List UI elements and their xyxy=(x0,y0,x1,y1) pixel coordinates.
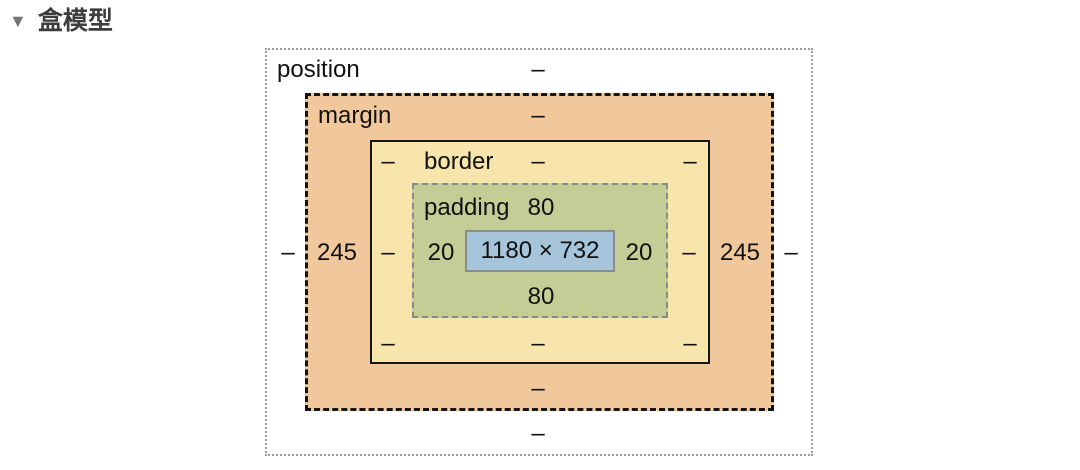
margin-top-value: – xyxy=(531,104,544,128)
border-bottom-left-value: – xyxy=(381,332,394,356)
section-title: 盒模型 xyxy=(38,9,113,34)
position-left-value: – xyxy=(281,241,294,265)
margin-bottom-value: – xyxy=(531,377,544,401)
border-left-value: – xyxy=(381,241,394,265)
border-bottom-value: – xyxy=(531,332,544,356)
border-label: border xyxy=(424,150,493,174)
disclosure-triangle-icon[interactable]: ▼ xyxy=(9,12,27,30)
position-label: position xyxy=(277,58,360,82)
content-size-value: 1180 × 732 xyxy=(480,237,599,265)
border-bottom-right-value: – xyxy=(683,332,696,356)
padding-right-value: 20 xyxy=(626,241,653,265)
padding-top-value: 80 xyxy=(528,196,555,220)
content-box[interactable]: 1180 × 732 xyxy=(465,230,615,272)
margin-right-value: 245 xyxy=(720,241,760,265)
computed-styles-panel: ▼ 盒模型 1180 × 732 position – margin – – b… xyxy=(0,0,1080,470)
border-top-value: – xyxy=(531,150,544,174)
position-top-value: – xyxy=(531,58,544,82)
position-bottom-value: – xyxy=(531,422,544,446)
border-top-right-value: – xyxy=(683,150,696,174)
margin-label: margin xyxy=(318,104,391,128)
padding-left-value: 20 xyxy=(428,241,455,265)
margin-left-value: 245 xyxy=(317,241,357,265)
padding-label: padding xyxy=(424,196,509,220)
border-right-value: – xyxy=(682,241,695,265)
padding-bottom-value: 80 xyxy=(528,285,555,309)
position-right-value: – xyxy=(784,241,797,265)
box-model-section-header[interactable]: ▼ 盒模型 xyxy=(9,5,113,37)
border-top-left-value: – xyxy=(381,150,394,174)
